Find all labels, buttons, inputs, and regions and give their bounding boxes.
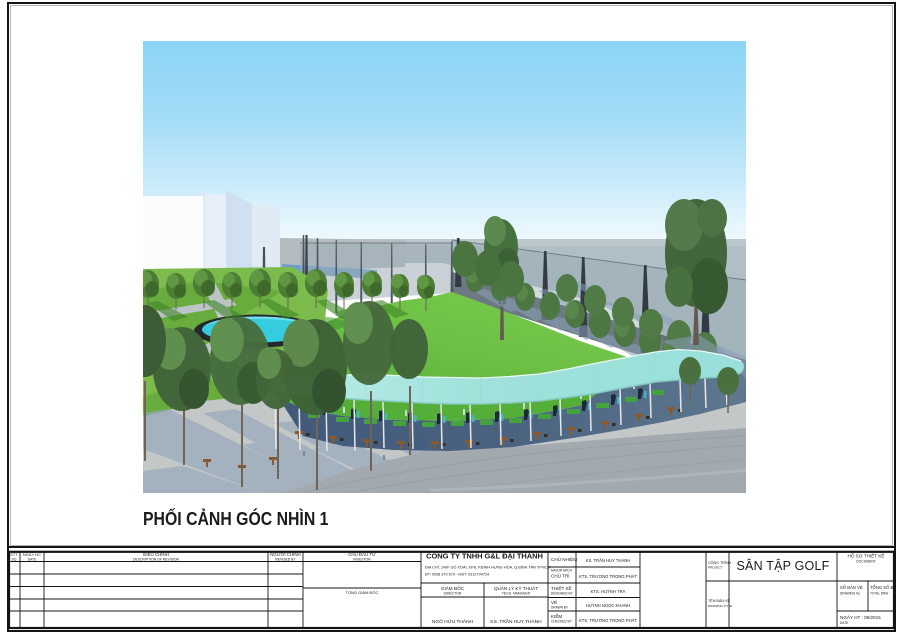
svg-text:KTS. HUỲNH TRÀ: KTS. HUỲNH TRÀ [591, 589, 626, 594]
svg-text:TỔNG SỐ BV: TỔNG SỐ BV [870, 585, 896, 590]
svg-text:DRAWN BY: DRAWN BY [551, 606, 569, 610]
svg-text:SÂN TẬP GOLF: SÂN TẬP GOLF [737, 558, 830, 573]
svg-text:CÔNG TRÌNH: CÔNG TRÌNH [708, 560, 732, 565]
svg-text:THIẾT KẾ: THIẾT KẾ [551, 585, 572, 591]
svg-text:STT: STT [10, 552, 18, 557]
svg-text:DESCRIPTION OF REVISION: DESCRIPTION OF REVISION [133, 558, 180, 562]
svg-text:TECH. MANAGER: TECH. MANAGER [502, 592, 531, 596]
svg-text:KS. TRẦN HUY THÀNH: KS. TRẦN HUY THÀNH [490, 618, 542, 625]
svg-text:DOCUMENT: DOCUMENT [856, 560, 876, 564]
svg-text:HỒ SƠ THIẾT KẾ: HỒ SƠ THIẾT KẾ [848, 553, 885, 559]
svg-text:INVESTOR: INVESTOR [353, 558, 371, 562]
svg-text:DATE: DATE [28, 558, 38, 562]
svg-text:NGÔ HỮU THÀNH: NGÔ HỮU THÀNH [432, 618, 474, 625]
svg-text:MAJOR ARCH: MAJOR ARCH [551, 569, 573, 573]
svg-text:CHỦ NHIỆM: CHỦ NHIỆM [551, 555, 577, 562]
svg-text:GIÁM ĐỐC: GIÁM ĐỐC [441, 585, 465, 591]
svg-text:DESIGNED BY: DESIGNED BY [551, 592, 574, 596]
svg-text:NGƯỜI CHỈNH: NGƯỜI CHỈNH [270, 552, 300, 557]
svg-text:ĐT: 0938 370 679 - MST: 031270: ĐT: 0938 370 679 - MST: 0312704724 [425, 573, 489, 577]
svg-text:KIỂM: KIỂM [551, 613, 562, 619]
svg-text:QUẢN LÝ KỸ THUẬT: QUẢN LÝ KỸ THUẬT [494, 585, 538, 591]
svg-text:REVISED BY: REVISED BY [275, 558, 296, 562]
svg-text:CÔNG TY TNHH G&L ĐẠI THÀNH: CÔNG TY TNHH G&L ĐẠI THÀNH [426, 552, 543, 561]
svg-text:TOTAL DRW: TOTAL DRW [870, 592, 888, 596]
svg-text:HUỲNH NGỌC KHANH: HUỲNH NGỌC KHANH [586, 603, 630, 608]
svg-text:CHỦ ĐẦU TƯ: CHỦ ĐẦU TƯ [348, 552, 376, 557]
svg-text:ĐIỀU CHỈNH: ĐIỀU CHỈNH [143, 552, 169, 557]
svg-text:CHECKED BY: CHECKED BY [551, 620, 573, 624]
svg-text:NGÀY HT : 09/2015: NGÀY HT : 09/2015 [840, 614, 881, 620]
svg-text:CHỦ TRÌ: CHỦ TRÌ [551, 573, 570, 579]
svg-text:DRAWING No: DRAWING No [840, 592, 860, 596]
svg-text:DIRECTOR: DIRECTOR [444, 592, 462, 596]
svg-text:KTS. TRƯƠNG TRỌNG PHÁT: KTS. TRƯƠNG TRỌNG PHÁT [579, 574, 637, 579]
svg-text:ĐỊA CHỈ: 140F GÒ XOÀI, KP8, P.: ĐỊA CHỈ: 140F GÒ XOÀI, KP8, P.BÌNH HƯNG … [425, 565, 550, 570]
svg-text:DATE: DATE [840, 621, 848, 625]
svg-text:TỔNG GIÁM ĐỐC: TỔNG GIÁM ĐỐC [346, 590, 379, 595]
svg-text:TÊN BẢN VẼ: TÊN BẢN VẼ [708, 598, 730, 603]
svg-text:SQ: SQ [12, 558, 17, 562]
svg-text:NGÀY HC: NGÀY HC [23, 552, 41, 557]
svg-text:PROJECT: PROJECT [708, 566, 723, 570]
svg-text:VẼ: VẼ [551, 599, 557, 605]
svg-text:SỐ BẢN VẼ: SỐ BẢN VẼ [840, 585, 863, 590]
svg-text:DRAWING TITLE: DRAWING TITLE [708, 604, 732, 608]
svg-text:KTS. TRƯƠNG TRỌNG PHÁT: KTS. TRƯƠNG TRỌNG PHÁT [579, 618, 637, 623]
svg-text:KS. TRẦN HUY THÀNH: KS. TRẦN HUY THÀNH [586, 558, 631, 563]
